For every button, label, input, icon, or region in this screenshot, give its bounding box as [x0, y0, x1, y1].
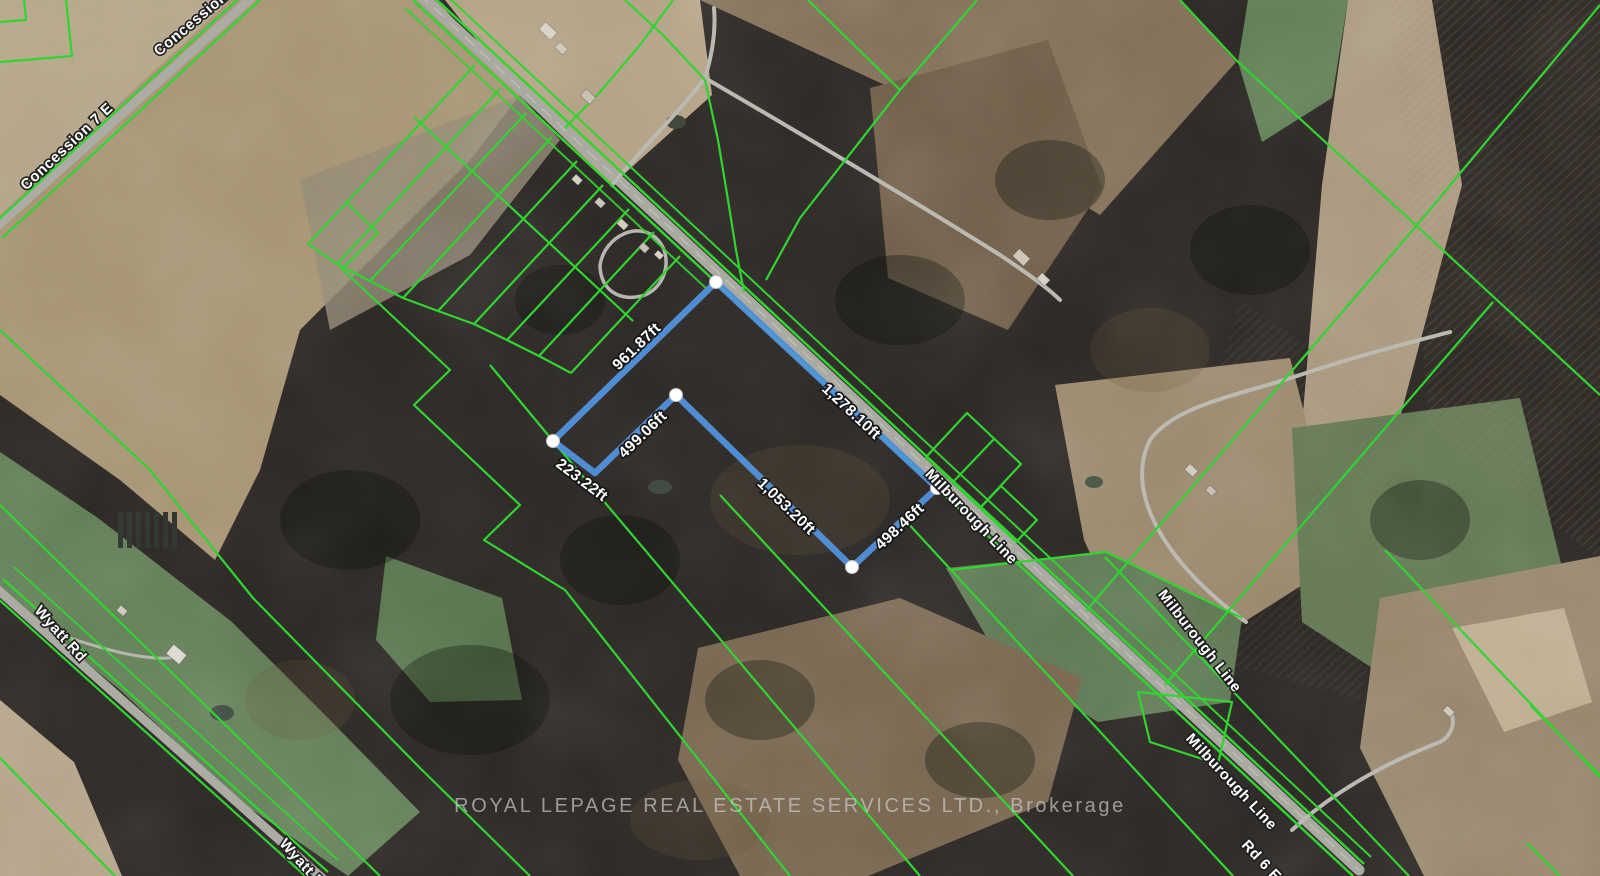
satellite-basemap: 961.87ft 1,278.10ft 499.06ft 223.22ft 1,…	[0, 0, 1600, 876]
boundary-vertex-handle[interactable]	[547, 435, 560, 448]
boundary-vertex-handle[interactable]	[846, 561, 859, 574]
brokerage-watermark: ROYAL LEPAGE REAL ESTATE SERVICES LTD., …	[454, 795, 1126, 817]
boundary-vertex-handle[interactable]	[710, 276, 723, 289]
boundary-vertex-handle[interactable]	[670, 389, 683, 402]
aerial-map-view[interactable]: 961.87ft 1,278.10ft 499.06ft 223.22ft 1,…	[0, 0, 1600, 876]
